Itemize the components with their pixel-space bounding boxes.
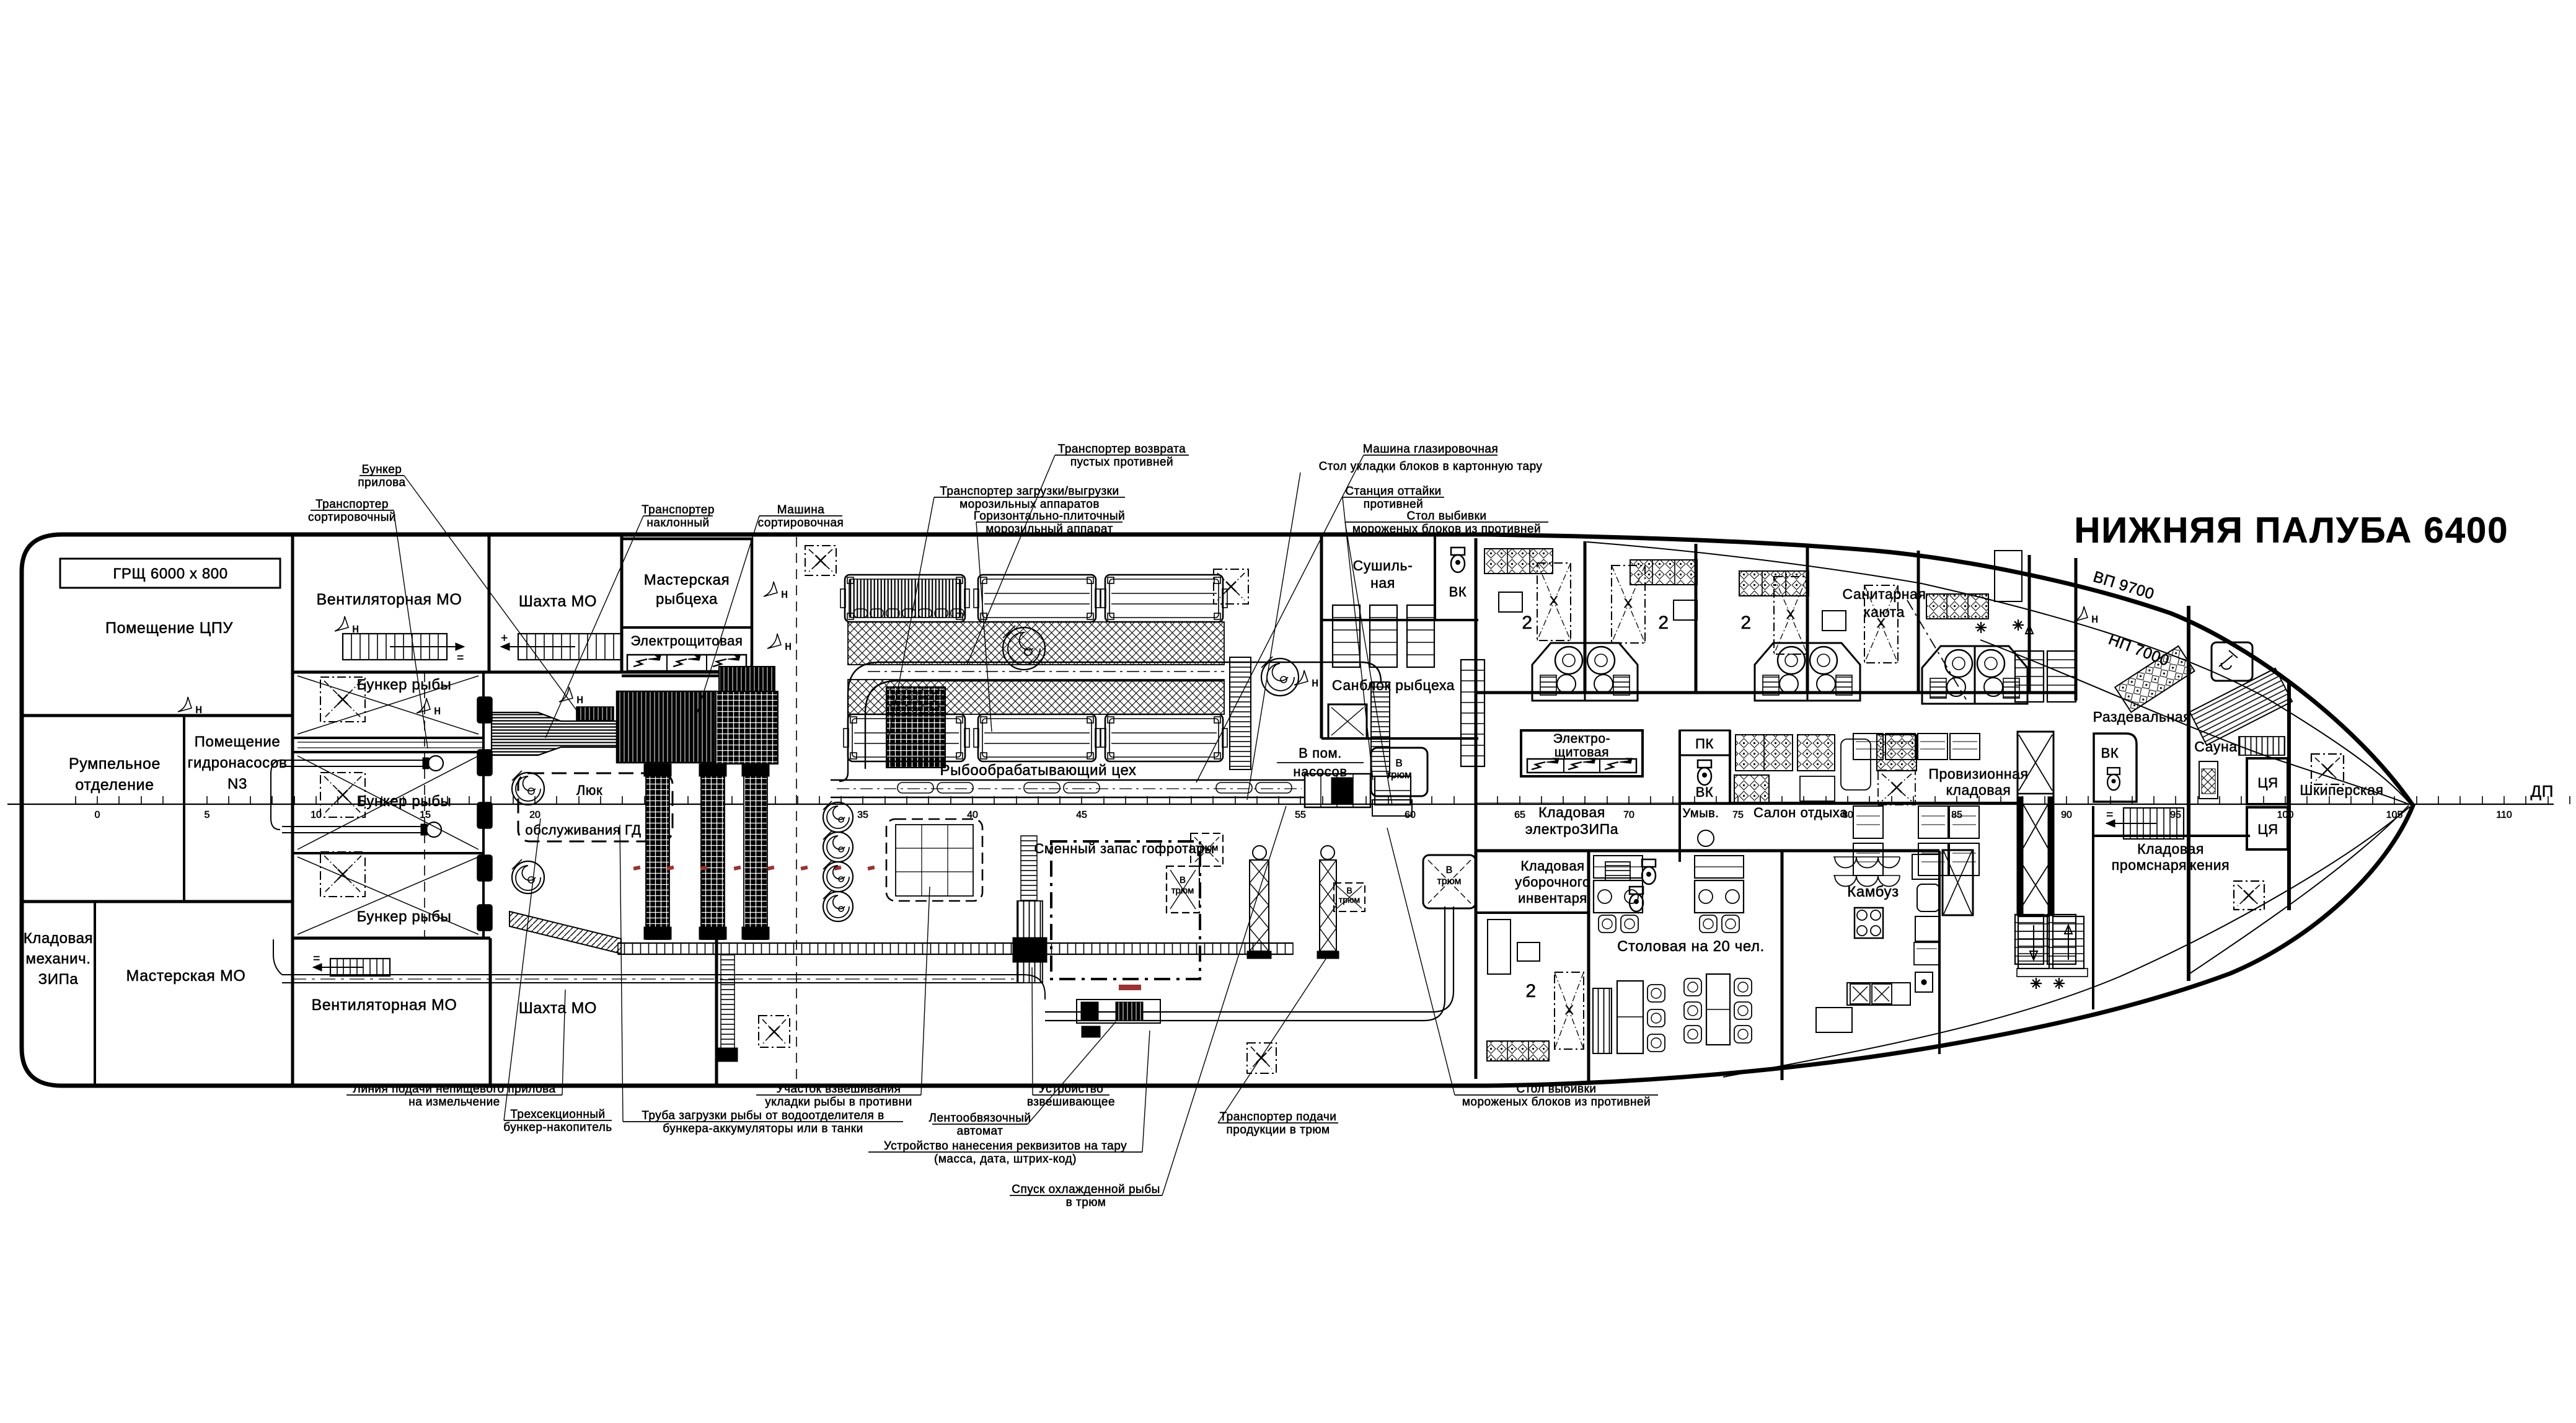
svg-text:Труба загрузки рыбы от вод: Труба загрузки рыбы от водоотделителя в (642, 1109, 884, 1122)
svg-text:Кладовая: Кладовая (24, 930, 93, 947)
svg-text:100: 100 (2277, 810, 2294, 820)
svg-text:укладки рыбы в противни: укладки рыбы в противни (765, 1096, 912, 1109)
svg-text:В: В (1446, 865, 1453, 876)
svg-text:85: 85 (1951, 810, 1962, 820)
svg-text:110: 110 (2496, 810, 2512, 820)
svg-text:обслуживания ГД: обслуживания ГД (525, 822, 641, 838)
svg-text:кладовая: кладовая (1946, 782, 2011, 798)
svg-text:ВК: ВК (1696, 784, 1714, 800)
svg-text:ПК: ПК (1695, 736, 1714, 751)
svg-text:автомат: автомат (957, 1125, 1003, 1138)
svg-text:морозильных аппаратов: морозильных аппаратов (959, 498, 1100, 511)
svg-text:2: 2 (1658, 613, 1669, 633)
svg-text:Мастерская МО: Мастерская МО (126, 967, 246, 985)
svg-text:Помещение: Помещение (195, 734, 281, 750)
svg-text:Кладовая: Кладовая (1520, 858, 1584, 874)
svg-text:Салон отдыха: Салон отдыха (1753, 805, 1848, 820)
svg-text:механич.: механич. (25, 951, 90, 967)
svg-text:бункера-аккумуляторы или в: бункера-аккумуляторы или в танки (663, 1122, 863, 1135)
svg-text:н: н (434, 704, 441, 717)
svg-text:В: В (1180, 875, 1186, 885)
svg-text:В: В (1346, 885, 1352, 895)
svg-text:35: 35 (857, 810, 868, 820)
svg-text:трюм: трюм (1386, 769, 1412, 781)
svg-text:рыбцеха: рыбцеха (656, 591, 718, 608)
svg-text:н: н (352, 622, 359, 636)
svg-text:Стол выбивки: Стол выбивки (1407, 510, 1487, 523)
svg-text:Сушиль-: Сушиль- (1353, 557, 1413, 574)
svg-text:=: = (313, 952, 320, 965)
svg-text:ЦЯ: ЦЯ (2257, 822, 2278, 837)
svg-text:промснаряжения: промснаряжения (2112, 857, 2230, 873)
svg-text:отделение: отделение (75, 776, 154, 794)
svg-text:трюм: трюм (1437, 876, 1461, 887)
svg-text:Машина глазировочная: Машина глазировочная (1363, 443, 1499, 456)
svg-text:ВК: ВК (2101, 745, 2119, 761)
svg-text:Станция оттайки: Станция оттайки (1345, 485, 1441, 498)
svg-text:инвентаря: инвентаря (1518, 890, 1587, 906)
svg-text:ДП: ДП (2531, 782, 2554, 800)
svg-text:Помещение ЦПУ: Помещение ЦПУ (105, 619, 233, 637)
svg-text:Кладовая: Кладовая (2137, 841, 2204, 857)
svg-text:Кладовая: Кладовая (1538, 804, 1605, 820)
svg-text:15: 15 (420, 810, 431, 820)
svg-text:пустых противней: пустых противней (1070, 456, 1173, 469)
svg-text:прилова: прилова (358, 476, 405, 489)
svg-text:Горизонтально-плиточный: Горизонтально-плиточный (974, 510, 1126, 523)
svg-text:н: н (785, 639, 792, 653)
svg-text:Транспортер подачи: Транспортер подачи (1220, 1110, 1337, 1124)
svg-text:2: 2 (1525, 981, 1536, 1001)
svg-text:75: 75 (1732, 810, 1744, 820)
svg-text:электроЗИПа: электроЗИПа (1525, 821, 1618, 837)
svg-text:60: 60 (1405, 810, 1416, 820)
svg-text:Линия подачи непищевого при: Линия подачи непищевого прилова (353, 1083, 555, 1096)
svg-text:Электро-: Электро- (1553, 732, 1611, 746)
svg-text:трюм: трюм (1339, 895, 1360, 905)
svg-text:гидронасосов: гидронасосов (188, 755, 288, 771)
svg-text:Вентиляторная МО: Вентиляторная МО (317, 591, 462, 608)
svg-text:Спуск охлажденной рыбы: Спуск охлажденной рыбы (1012, 1183, 1160, 1196)
svg-text:ная: ная (1370, 575, 1395, 591)
svg-text:Устройство: Устройство (1039, 1083, 1103, 1096)
svg-text:5: 5 (205, 810, 210, 820)
svg-text:=: = (2106, 809, 2114, 822)
svg-text:65: 65 (1514, 810, 1525, 820)
svg-text:0: 0 (95, 810, 100, 820)
svg-text:Электрощитовая: Электрощитовая (630, 633, 743, 649)
svg-text:N3: N3 (227, 776, 247, 792)
svg-text:Стол выбивки: Стол выбивки (1517, 1083, 1597, 1096)
svg-text:мороженых блоков из противн: мороженых блоков из противней (1462, 1096, 1651, 1109)
svg-text:105: 105 (2386, 810, 2403, 820)
svg-text:ЦЯ: ЦЯ (2257, 775, 2278, 791)
svg-text:Транспортер: Транспортер (642, 503, 715, 516)
svg-text:Мастерская: Мастерская (644, 572, 730, 588)
svg-text:Стол укладки блоков в карт: Стол укладки блоков в картонную тару (1319, 460, 1543, 473)
svg-text:Трехсекционный: Трехсекционный (510, 1108, 605, 1121)
svg-text:Бункер рыбы: Бункер рыбы (357, 908, 452, 925)
svg-text:Санблок рыбцеха: Санблок рыбцеха (1332, 677, 1455, 693)
svg-text:Румпельное: Румпельное (69, 755, 161, 773)
svg-text:ВК: ВК (1449, 584, 1467, 600)
svg-text:Шахта МО: Шахта МО (519, 1000, 597, 1017)
svg-text:в трюм: в трюм (1066, 1196, 1106, 1209)
svg-text:ГРЩ 6000 х 800: ГРЩ 6000 х 800 (113, 565, 227, 582)
svg-text:В: В (1395, 757, 1402, 769)
svg-text:Транспортер загрузки/выгрузки: Транспортер загрузки/выгрузки (940, 485, 1119, 498)
svg-text:насосов: насосов (1293, 764, 1347, 779)
svg-text:В пом.: В пом. (1299, 745, 1342, 761)
svg-text:н: н (576, 693, 584, 706)
svg-text:наклонный: наклонный (646, 516, 709, 530)
svg-text:Бункер: Бункер (362, 463, 402, 476)
svg-text:2: 2 (1522, 613, 1532, 633)
svg-text:55: 55 (1295, 810, 1306, 820)
svg-text:противней: противней (1364, 498, 1424, 511)
svg-text:Бункер рыбы: Бункер рыбы (357, 676, 452, 693)
svg-text:Транспортер: Транспортер (315, 498, 389, 511)
svg-text:Столовая на 20 чел.: Столовая на 20 чел. (1617, 938, 1765, 955)
svg-text:95: 95 (2170, 810, 2181, 820)
svg-text:взвешивающее: взвешивающее (1027, 1096, 1115, 1109)
svg-text:морозильный аппарат: морозильный аппарат (986, 523, 1113, 536)
svg-text:щитовая: щитовая (1555, 745, 1609, 760)
svg-text:сортировочный: сортировочный (308, 511, 396, 524)
svg-text:Вентиляторная МО: Вентиляторная МО (312, 996, 457, 1014)
svg-text:X: X (1786, 608, 1796, 622)
svg-text:Люк: Люк (576, 782, 602, 798)
svg-text:Провизионная: Провизионная (1928, 766, 2028, 782)
svg-text:сортировочная: сортировочная (758, 516, 844, 530)
svg-text:=: = (457, 652, 464, 665)
svg-text:Умыв.: Умыв. (1682, 807, 1719, 820)
svg-text:X: X (1624, 596, 1633, 611)
svg-text:Участок взвешивания: Участок взвешивания (777, 1083, 901, 1096)
svg-text:2: 2 (1740, 613, 1751, 633)
svg-text:+: + (501, 632, 508, 645)
svg-text:Устройство нанесения реквизи: Устройство нанесения реквизитов на тару (884, 1140, 1127, 1153)
svg-text:Бункер рыбы: Бункер рыбы (357, 793, 452, 810)
svg-text:н: н (781, 587, 788, 601)
svg-text:Лентообвязочный: Лентообвязочный (929, 1112, 1031, 1125)
svg-text:Транспортер возврата: Транспортер возврата (1058, 443, 1186, 456)
svg-text:на измельчение: на измельчение (408, 1096, 500, 1109)
svg-text:ЗИПа: ЗИПа (38, 971, 79, 988)
svg-text:Сменный запас гофротары: Сменный запас гофротары (1034, 841, 1214, 856)
svg-text:мороженых блоков из противн: мороженых блоков из противней (1352, 523, 1541, 536)
svg-text:20: 20 (529, 810, 540, 820)
svg-text:НИЖНЯЯ ПАЛУБА 6400: НИЖНЯЯ ПАЛУБА 6400 (2075, 510, 2509, 551)
svg-text:X: X (1565, 1003, 1574, 1017)
svg-text:трюм: трюм (1171, 885, 1194, 896)
svg-text:уборочного: уборочного (1515, 874, 1590, 890)
svg-text:н: н (1312, 676, 1319, 689)
svg-text:трюм: трюм (1196, 843, 1219, 853)
svg-text:Рыбообрабатывающий цех: Рыбообрабатывающий цех (940, 762, 1137, 779)
svg-text:Раздевальная: Раздевальная (2093, 709, 2192, 725)
svg-text:(масса, дата, штрих-код): (масса, дата, штрих-код) (934, 1153, 1077, 1166)
svg-text:н: н (195, 703, 203, 716)
svg-text:Машина: Машина (777, 503, 825, 516)
svg-text:Шкиперская: Шкиперская (2300, 782, 2383, 798)
svg-text:70: 70 (1623, 810, 1634, 820)
svg-text:Санитарная: Санитарная (1842, 586, 1926, 602)
svg-text:каюта: каюта (1864, 604, 1905, 620)
svg-text:X: X (1550, 594, 1559, 608)
svg-text:продукции в трюм: продукции в трюм (1226, 1124, 1330, 1137)
svg-text:45: 45 (1076, 810, 1087, 820)
svg-text:90: 90 (2061, 810, 2072, 820)
svg-text:бункер-накопитель: бункер-накопитель (503, 1121, 612, 1134)
svg-text:Шахта МО: Шахта МО (519, 593, 597, 610)
svg-text:н: н (2091, 612, 2099, 626)
